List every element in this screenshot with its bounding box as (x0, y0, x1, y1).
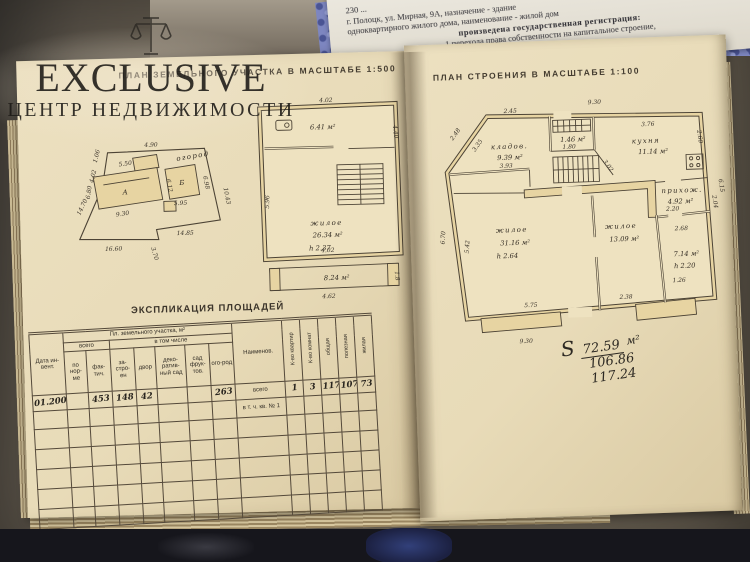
expl-cell-empty (305, 413, 324, 434)
expl-cell: 263 (211, 384, 236, 401)
expl-cell-empty (359, 410, 378, 431)
room-name: жилое (310, 219, 342, 228)
expl-cell-empty (115, 444, 140, 465)
dim: 2.45 (502, 108, 517, 116)
expl-cell-empty (95, 505, 120, 526)
dim: 9.30 (588, 99, 602, 106)
dim: 5.50 (118, 160, 132, 169)
dim: 2.20 (665, 205, 680, 213)
expl-cell-empty (159, 421, 190, 443)
expl-cell-empty (35, 448, 70, 470)
scales-icon (128, 14, 174, 58)
expl-header-col: двор (134, 347, 157, 390)
expl-cell-empty (340, 393, 359, 412)
room-name: кухня (632, 136, 660, 145)
expl-cell-empty (194, 499, 219, 520)
expl-header-col: фак-тич. (86, 349, 112, 392)
dim: 3.76 (641, 121, 655, 128)
dim: 3.70 (149, 246, 160, 261)
dim: 4.62 (321, 293, 336, 300)
plot-main-house (93, 167, 163, 209)
room-name: жилое (605, 222, 637, 231)
expl-cell-empty (67, 409, 90, 428)
expl-cell-empty (119, 504, 144, 525)
shadow-blob (158, 533, 254, 561)
dim: 14.85 (177, 230, 195, 237)
room-name: прихож. (661, 186, 703, 195)
watermark-subtitle: ЦЕНТР НЕДВИЖИМОСТИ (6, 98, 296, 122)
expl-cell-empty (158, 403, 189, 423)
agency-watermark: EXCLUSIVE ЦЕНТР НЕДВИЖИМОСТИ (6, 14, 296, 122)
expl-cell-empty (118, 484, 143, 505)
dim: 1.8 (393, 271, 401, 281)
expl-cell: 42 (136, 389, 158, 406)
expl-cell-empty (363, 490, 382, 511)
expl-cell-empty (89, 407, 114, 426)
building-plan-title: ПЛАН СТРОЕНИЯ В МАСШТАБЕ 1:100 (433, 66, 640, 83)
room-area: 4.92 м² (667, 197, 694, 206)
house-letter: А (121, 188, 127, 196)
expl-cell-empty (361, 450, 380, 471)
expl-cell-empty (242, 495, 293, 518)
expl-cell-empty (309, 493, 328, 514)
expl-cell-empty (306, 433, 325, 454)
watermark-title: EXCLUSIVE (6, 58, 296, 98)
expl-cell-empty (164, 501, 195, 523)
dim: 5.75 (524, 302, 538, 309)
dim: 6.15 (717, 179, 726, 193)
dim: 2.38 (618, 294, 633, 302)
dim: 2.04 (710, 194, 719, 209)
dim: 5.96 (264, 195, 271, 209)
garden-label: огород (176, 150, 210, 163)
dim: 5.42 (464, 240, 472, 254)
expl-cell-empty (326, 472, 345, 493)
expl-cell-empty (143, 502, 165, 523)
dim: 6.70 (440, 231, 448, 245)
expl-header-living-area: жилая (353, 314, 375, 377)
right-page: ПЛАН СТРОЕНИЯ В МАСШТАБЕ 1:100 (404, 35, 742, 522)
dim: 16.60 (105, 245, 123, 252)
expl-cell-empty (188, 401, 213, 420)
room-area: 31.16 м² (500, 238, 530, 247)
expl-cell-empty (325, 452, 344, 473)
expl-cell-empty (33, 410, 68, 430)
expl-cell (157, 387, 188, 405)
expl-cell-empty (307, 453, 326, 474)
expl-cell-empty (140, 462, 162, 483)
expl-cell-empty (362, 470, 381, 491)
dim: 6.98 (201, 175, 211, 190)
dim: 1.06 (92, 149, 102, 164)
dim: 5.95 (174, 200, 188, 207)
expl-cell-empty (327, 492, 346, 513)
expl-header-col: деко-ратив-ный сад (155, 345, 187, 389)
expl-cell-empty (214, 438, 239, 459)
dim: 1.80 (562, 143, 576, 150)
room-area: 7.14 м² (673, 249, 699, 258)
dim: 2.48 (448, 127, 462, 143)
expl-header-col: ого-род (209, 342, 235, 385)
expl-cell-empty (213, 418, 238, 439)
expl-cell: 3 (303, 379, 322, 396)
expl-cell-empty (345, 491, 364, 512)
expl-cell-empty (291, 494, 310, 515)
expl-cell-empty (218, 498, 243, 519)
expl-cell-empty (287, 414, 306, 435)
dim: 9.30 (519, 338, 533, 345)
blue-object (366, 528, 452, 562)
expl-cell-empty (212, 400, 237, 419)
expl-cell: 73 (357, 376, 376, 393)
expl-cell (187, 385, 212, 402)
dim: 6.80 (85, 185, 94, 199)
expl-cell-empty (91, 445, 116, 466)
expl-cell-empty (343, 451, 362, 472)
explication-table: Дата ин-вент. Пл. земельного участка, м²… (28, 313, 383, 530)
room-area: 13.09 м² (609, 235, 639, 244)
expl-cell-empty (190, 439, 215, 460)
dim: 10.43 (222, 187, 232, 205)
expl-cell-empty (215, 458, 240, 479)
expl-cell-empty (37, 468, 72, 490)
expl-cell-empty (163, 481, 194, 503)
expl-cell-empty (360, 430, 379, 451)
expl-cell-empty (189, 419, 214, 440)
expl-header-col: по нор-ме (64, 351, 88, 394)
room-name: жилое (496, 226, 528, 235)
room-area: 11.14 м² (638, 147, 668, 156)
room-area: 26.34 м² (312, 231, 343, 240)
expl-cell-empty (72, 486, 95, 507)
expl-cell-empty (288, 434, 307, 455)
expl-cell-empty (34, 428, 69, 450)
expl-cell-empty (344, 471, 363, 492)
expl-cell: 1 (285, 380, 304, 397)
expl-cell-empty (114, 424, 139, 445)
expl-cell-empty (216, 478, 241, 499)
dim: 4.02 (318, 97, 333, 104)
dim: 4.02 (320, 247, 335, 254)
expl-cell-empty (69, 446, 92, 467)
photo-of-technical-passport: 230 ... г. Полоцк, ул. Мирная, 9А, назна… (0, 0, 750, 562)
expl-cell-empty (322, 394, 341, 413)
expl-cell-empty (116, 464, 141, 485)
room-area: 6.41 м² (310, 123, 336, 132)
expl-cell-empty (358, 392, 377, 411)
expl-cell-empty (286, 396, 305, 415)
expl-cell-empty (323, 412, 342, 433)
expl-cell-empty (160, 441, 191, 463)
expl-cell: 453 (88, 391, 113, 408)
expl-cell (66, 393, 89, 410)
expl-cell-empty (139, 443, 161, 464)
expl-cell-empty (38, 488, 73, 510)
annex-letter: Б (178, 179, 184, 187)
expl-cell-empty (92, 465, 117, 486)
expl-cell-empty (290, 474, 309, 495)
expl-cell-empty (94, 485, 119, 506)
expl-cell-empty (308, 473, 327, 494)
expl-cell-empty (142, 482, 164, 503)
expl-cell-empty (39, 508, 74, 530)
room-height: h 2.64 (497, 252, 519, 261)
room-area: 9.39 м² (497, 153, 523, 162)
porch-area: 8.24 м² (324, 274, 350, 283)
expl-cell-empty (324, 432, 343, 453)
expl-header-col: сад фрук-тов. (185, 344, 211, 387)
expl-cell-empty (73, 506, 96, 527)
dim: 1.26 (672, 277, 686, 284)
expl-header-name: Наименов. (231, 319, 284, 384)
dim: 14.70 (76, 198, 90, 217)
room-height: h 2.20 (674, 261, 696, 270)
room-name: кладов. (491, 142, 529, 151)
expl-cell-empty (137, 405, 159, 424)
s-symbol: S (559, 336, 576, 362)
expl-cell-empty (138, 423, 160, 444)
expl-cell: 148 (112, 390, 137, 407)
dim: 9.30 (115, 210, 129, 219)
expl-cell-empty (192, 479, 217, 500)
expl-cell-empty (68, 427, 91, 448)
unit: м² (626, 333, 641, 348)
expl-cell-empty (304, 395, 323, 414)
expl-cell-empty (191, 459, 216, 480)
expl-cell-empty (342, 431, 361, 452)
expl-cell-empty (71, 466, 94, 487)
expl-cell-empty (341, 411, 360, 432)
expl-header-date: Дата ин-вент. (29, 332, 67, 396)
expl-cell-empty (161, 461, 192, 483)
expl-cell-empty (113, 406, 138, 425)
expl-cell-empty (90, 425, 115, 446)
dim: 2.68 (674, 225, 689, 233)
expl-cell: 107 (339, 377, 358, 394)
dim: 6.12 (164, 178, 174, 193)
expl-header-col: за-стро-ен (110, 348, 136, 391)
dim: 3.93 (499, 162, 513, 169)
expl-cell: 117 (321, 378, 340, 395)
expl-cell-empty (289, 454, 308, 475)
land-plot-sketch: огород А Б 4.90 10.43 14.85 3.70 16.60 1… (44, 135, 254, 272)
